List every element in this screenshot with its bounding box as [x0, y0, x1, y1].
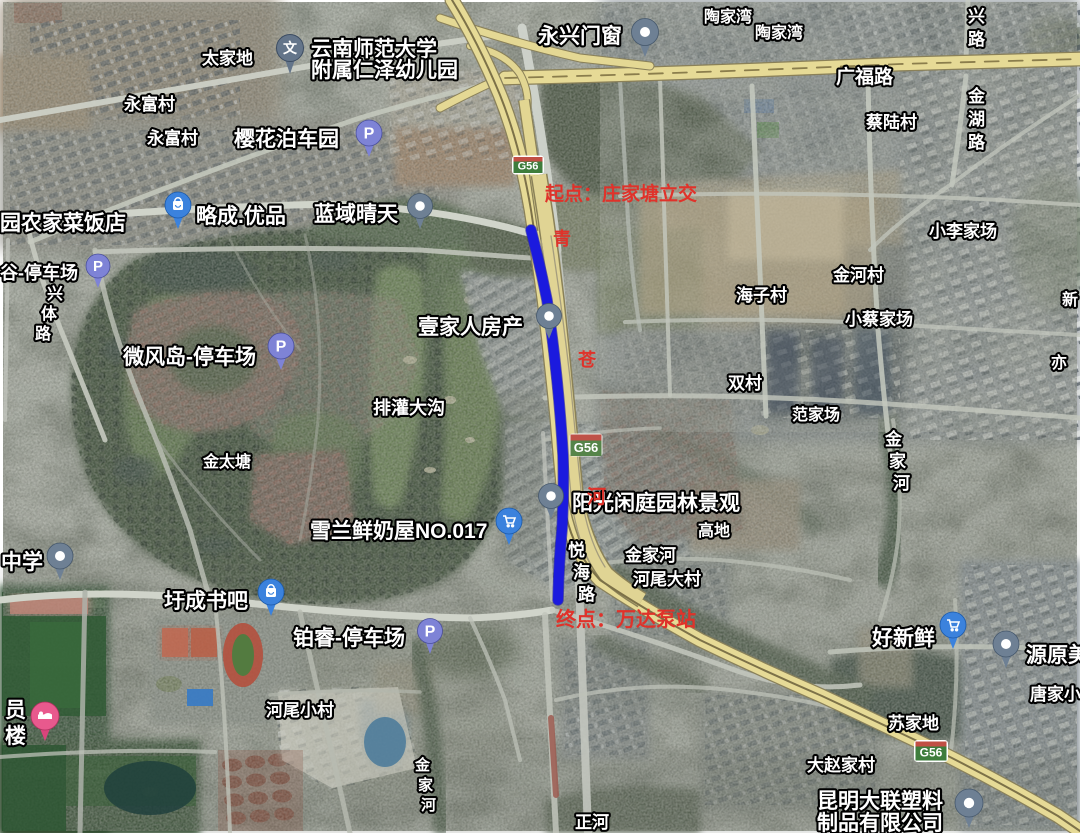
svg-text:谷-停车场: 谷-停车场 [0, 262, 78, 283]
svg-text:海子村: 海子村 [736, 285, 787, 305]
svg-text:苏家地: 苏家地 [888, 713, 939, 733]
svg-text:G56: G56 [920, 746, 943, 760]
svg-text:永富村: 永富村 [146, 128, 198, 148]
svg-text:苍: 苍 [577, 349, 597, 370]
svg-text:金: 金 [414, 756, 431, 774]
svg-text:路: 路 [35, 324, 52, 343]
svg-text:云南师范大学: 云南师范大学 [311, 37, 437, 61]
svg-text:排灌大沟: 排灌大沟 [373, 397, 445, 418]
svg-text:起点：庄家塘立交: 起点：庄家塘立交 [544, 182, 697, 205]
svg-text:金河村: 金河村 [832, 265, 884, 285]
svg-text:樱花泊车园: 樱花泊车园 [234, 127, 339, 151]
svg-text:金家河: 金家河 [624, 545, 676, 565]
svg-text:双村: 双村 [728, 373, 762, 393]
svg-text:广福路: 广福路 [836, 65, 894, 88]
svg-text:范家场: 范家场 [792, 405, 840, 424]
svg-text:P: P [425, 624, 436, 641]
svg-text:昆明大联塑料: 昆明大联塑料 [817, 790, 943, 813]
svg-text:制品有限公司: 制品有限公司 [817, 811, 943, 833]
svg-text:源原美: 源原美 [1026, 643, 1080, 667]
svg-text:金: 金 [884, 429, 903, 449]
svg-text:微风岛-停车场: 微风岛-停车场 [122, 345, 256, 369]
svg-text:太家地: 太家地 [202, 48, 253, 68]
svg-text:家: 家 [418, 776, 433, 794]
svg-text:小李家场: 小李家场 [929, 221, 997, 241]
svg-text:小蔡家场: 小蔡家场 [845, 309, 913, 329]
svg-text:兴: 兴 [968, 7, 985, 26]
svg-text:壹家人房产: 壹家人房产 [418, 315, 523, 339]
svg-text:家: 家 [889, 451, 906, 471]
svg-text:悦: 悦 [568, 540, 585, 560]
svg-text:兴: 兴 [47, 285, 63, 303]
svg-text:金太塘: 金太塘 [202, 452, 251, 471]
svg-text:河尾大村: 河尾大村 [633, 569, 701, 589]
svg-text:新: 新 [1062, 290, 1078, 309]
svg-text:员: 员 [5, 699, 26, 722]
svg-text:文: 文 [283, 40, 298, 56]
svg-text:附属仁泽幼儿园: 附属仁泽幼儿园 [311, 58, 458, 82]
svg-text:河: 河 [421, 796, 436, 814]
svg-text:路: 路 [968, 29, 986, 49]
svg-text:河: 河 [587, 486, 606, 508]
svg-text:陶家湾: 陶家湾 [704, 7, 752, 26]
svg-text:亦: 亦 [1051, 353, 1067, 372]
svg-text:正河: 正河 [575, 813, 609, 832]
svg-text:P: P [276, 339, 287, 356]
svg-text:体: 体 [41, 304, 58, 323]
svg-text:海: 海 [573, 562, 590, 582]
svg-text:河: 河 [893, 474, 910, 493]
svg-text:中学: 中学 [1, 550, 43, 574]
svg-text:青: 青 [553, 229, 571, 249]
svg-text:唐家小: 唐家小 [1030, 684, 1080, 704]
svg-text:雪兰鲜奶屋NO.017: 雪兰鲜奶屋NO.017 [310, 519, 487, 543]
svg-text:永富村: 永富村 [123, 94, 175, 114]
svg-text:P: P [93, 258, 103, 275]
svg-text:河尾小村: 河尾小村 [266, 700, 334, 720]
svg-text:永兴门窗: 永兴门窗 [537, 24, 622, 48]
svg-text:金: 金 [967, 86, 986, 106]
svg-text:G56: G56 [518, 161, 539, 173]
svg-text:路: 路 [968, 132, 986, 152]
svg-text:园农家菜饭店: 园农家菜饭店 [0, 211, 126, 235]
svg-text:蔡陆村: 蔡陆村 [865, 112, 917, 132]
svg-text:好新鲜: 好新鲜 [871, 626, 935, 650]
svg-text:P: P [364, 126, 375, 143]
svg-text:终点：万达泵站: 终点：万达泵站 [556, 607, 696, 631]
svg-text:略成.优品: 略成.优品 [196, 204, 286, 228]
svg-text:高地: 高地 [698, 521, 730, 540]
svg-text:楼: 楼 [5, 725, 26, 748]
svg-text:蓝域晴天: 蓝域晴天 [314, 202, 399, 226]
svg-text:陶家湾: 陶家湾 [755, 23, 803, 42]
svg-text:湖: 湖 [968, 110, 985, 129]
svg-text:圩成书吧: 圩成书吧 [164, 589, 248, 613]
svg-text:铂睿-停车场: 铂睿-停车场 [293, 626, 405, 650]
svg-text:大赵家村: 大赵家村 [807, 755, 875, 775]
svg-text:G56: G56 [574, 440, 599, 455]
svg-text:路: 路 [578, 584, 596, 604]
